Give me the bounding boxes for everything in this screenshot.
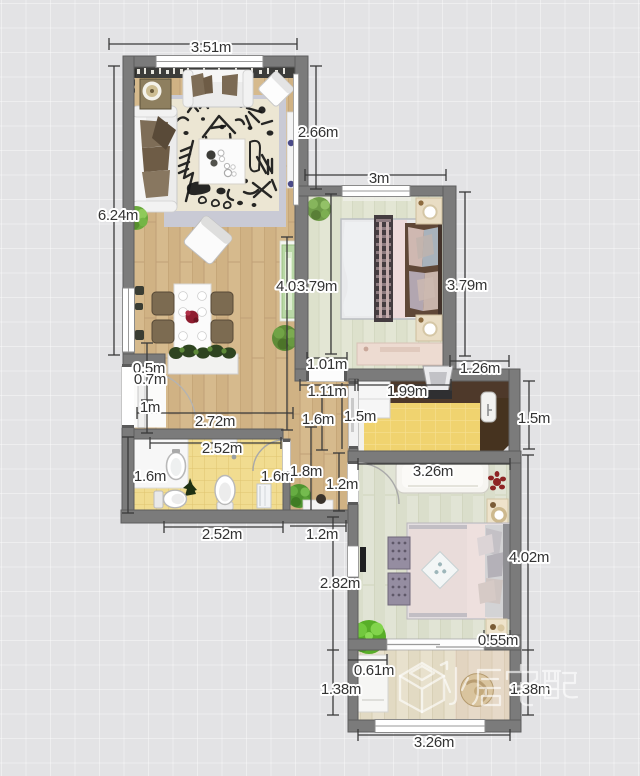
- svg-text:2.52m: 2.52m: [202, 526, 242, 543]
- svg-text:1.99m: 1.99m: [387, 383, 427, 400]
- svg-text:1.5m: 1.5m: [518, 410, 550, 427]
- svg-text:4.02m: 4.02m: [509, 549, 549, 566]
- svg-text:3.79m: 3.79m: [297, 278, 337, 295]
- svg-text:1.2m: 1.2m: [306, 526, 338, 543]
- svg-text:1.38m: 1.38m: [321, 681, 361, 698]
- svg-text:1.5m: 1.5m: [344, 408, 376, 425]
- svg-text:1.6m: 1.6m: [261, 468, 293, 485]
- svg-text:3m: 3m: [369, 170, 389, 187]
- svg-text:1.11m: 1.11m: [307, 383, 346, 400]
- svg-text:0.7m: 0.7m: [134, 371, 166, 388]
- svg-text:3.26m: 3.26m: [413, 463, 453, 480]
- svg-text:3.79m: 3.79m: [447, 277, 487, 294]
- svg-text:1.6m: 1.6m: [134, 468, 166, 485]
- svg-text:1m: 1m: [140, 399, 160, 416]
- svg-text:1.2m: 1.2m: [326, 476, 358, 493]
- svg-text:6.24m: 6.24m: [98, 207, 138, 224]
- svg-text:1.6m: 1.6m: [302, 411, 334, 428]
- svg-text:3.26m: 3.26m: [414, 734, 454, 751]
- svg-text:0.61m: 0.61m: [354, 662, 394, 679]
- svg-text:2.66m: 2.66m: [298, 124, 338, 141]
- svg-text:1.01m: 1.01m: [307, 356, 347, 373]
- svg-text:2.72m: 2.72m: [195, 413, 235, 430]
- svg-text:0.55m: 0.55m: [478, 632, 518, 649]
- svg-text:2.82m: 2.82m: [320, 575, 360, 592]
- svg-text:3.51m: 3.51m: [191, 39, 231, 56]
- svg-text:1.8m: 1.8m: [290, 463, 322, 480]
- svg-text:1.26m: 1.26m: [460, 360, 500, 377]
- svg-text:2.52m: 2.52m: [202, 440, 242, 457]
